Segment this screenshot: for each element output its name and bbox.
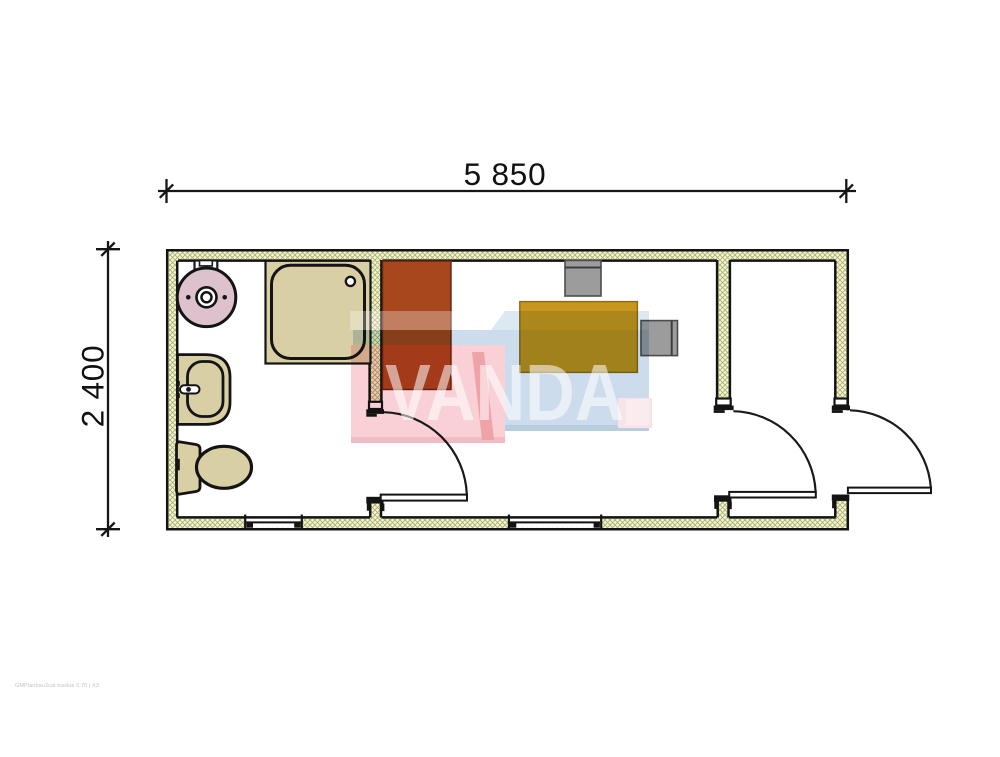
svg-text:5 850: 5 850 — [464, 156, 547, 192]
svg-text:2 400: 2 400 — [75, 345, 111, 428]
svg-text:GMPlanbau2cat.traslue 0.70 | X: GMPlanbau2cat.traslue 0.70 | X3 — [15, 683, 99, 689]
svg-text:VANDA: VANDA — [385, 347, 625, 437]
